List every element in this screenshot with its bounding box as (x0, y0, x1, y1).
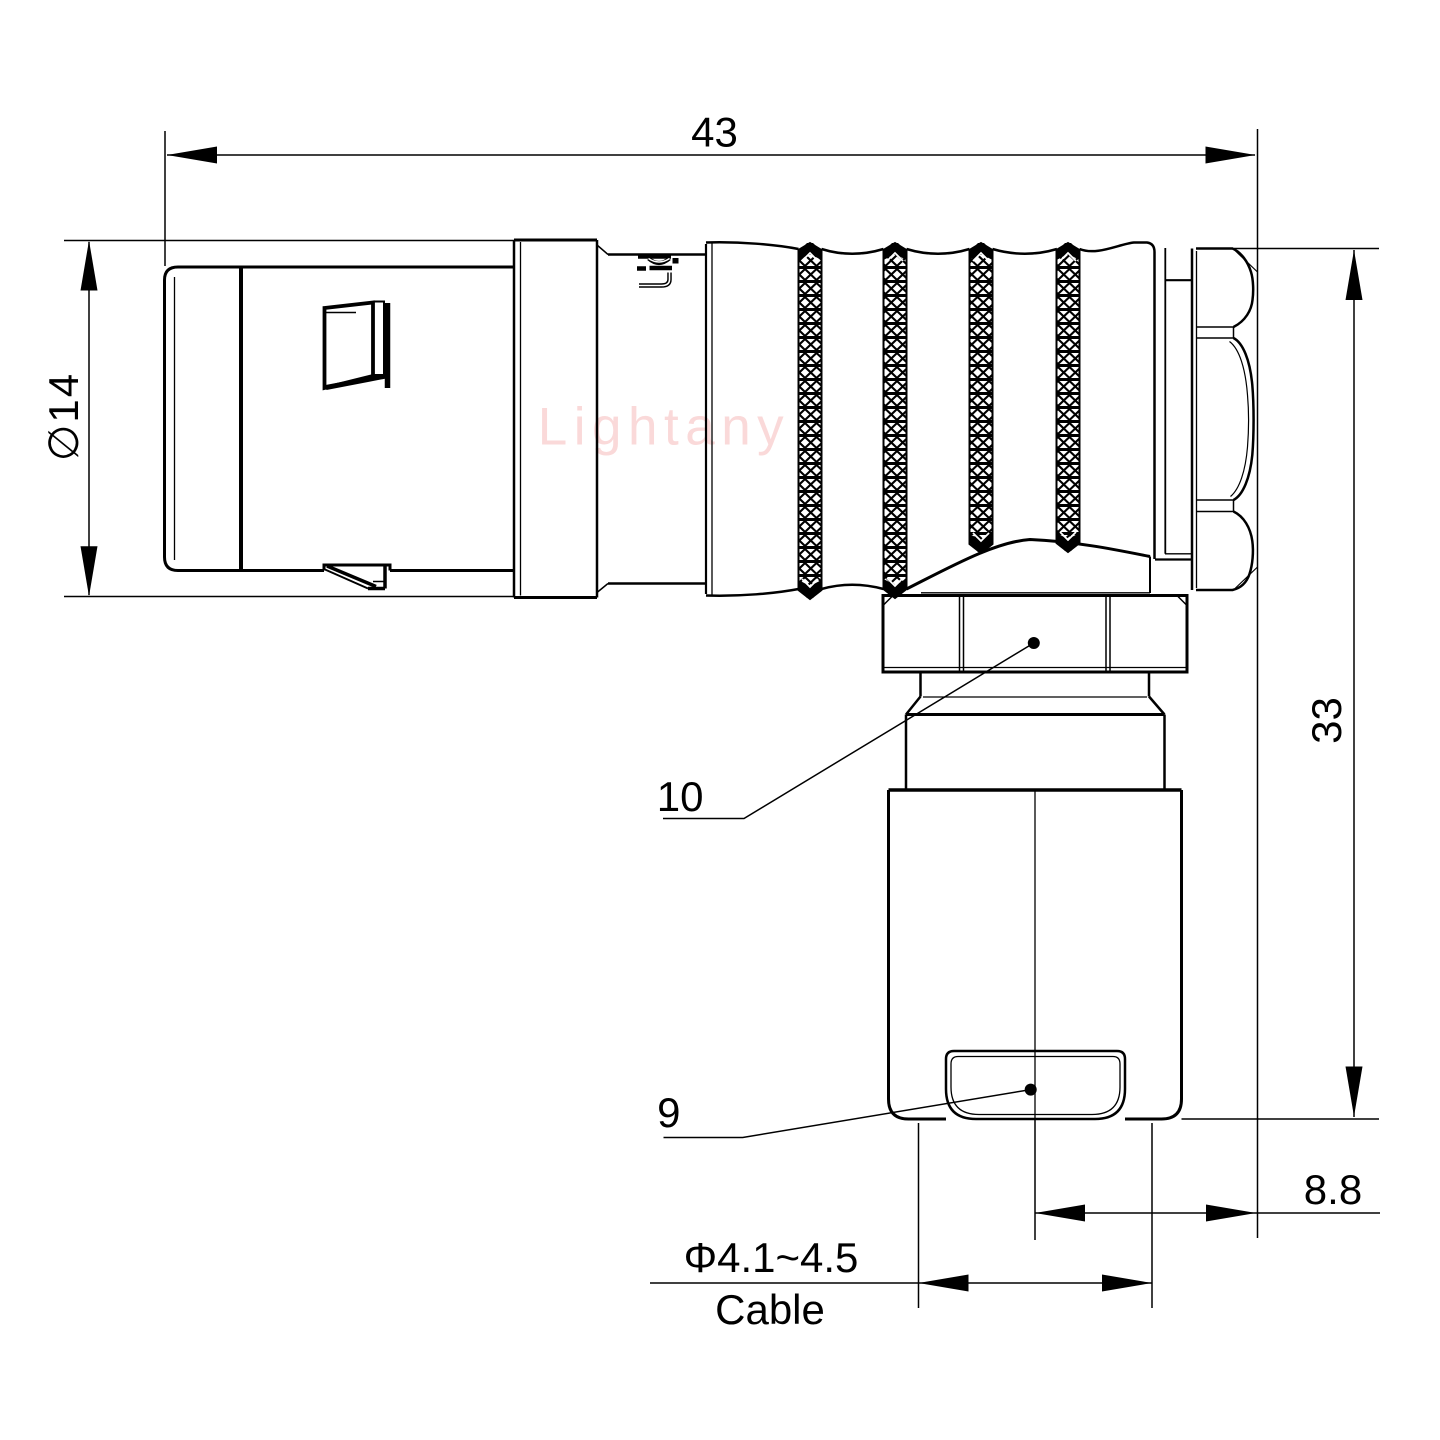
svg-text:33: 33 (1303, 697, 1350, 744)
svg-text:8.8: 8.8 (1304, 1166, 1362, 1213)
svg-text:43: 43 (691, 109, 738, 156)
svg-text:Φ4.1~4.5: Φ4.1~4.5 (684, 1234, 859, 1281)
svg-text:10: 10 (657, 773, 704, 820)
svg-text:∅14: ∅14 (40, 372, 87, 461)
svg-text:9: 9 (657, 1089, 680, 1136)
svg-text:Lightany: Lightany (538, 398, 790, 457)
svg-text:Cable: Cable (715, 1286, 825, 1333)
